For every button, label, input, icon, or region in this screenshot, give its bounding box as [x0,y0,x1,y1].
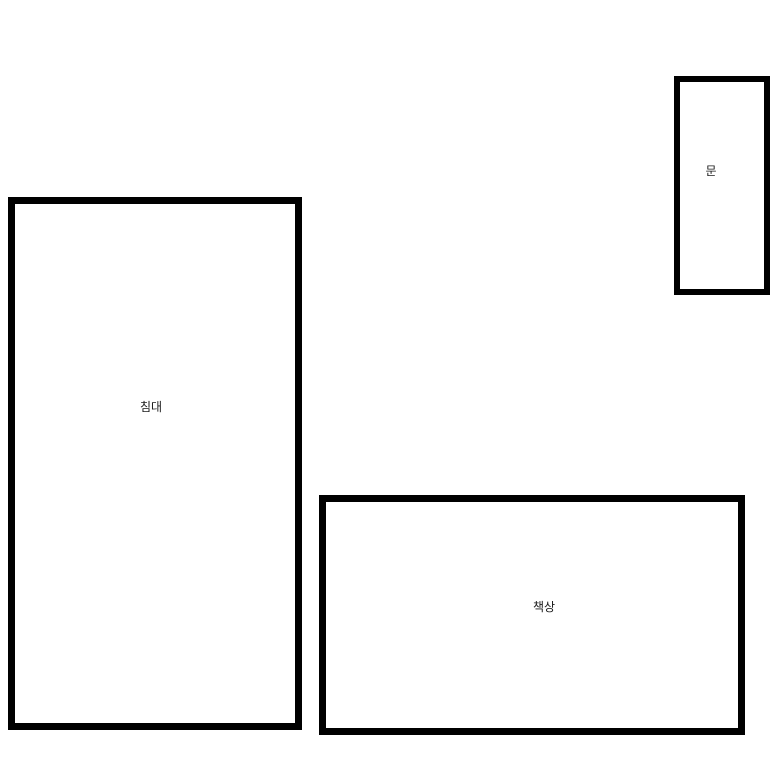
desk-label: 책상 [533,601,555,613]
bed-rectangle: 침대 [8,197,302,730]
bed-label: 침대 [140,401,162,413]
floor-plan-canvas: 침대 책상 문 [0,0,782,760]
desk-rectangle: 책상 [319,495,745,735]
door-label: 문 [705,165,716,177]
door-rectangle: 문 [674,76,770,295]
